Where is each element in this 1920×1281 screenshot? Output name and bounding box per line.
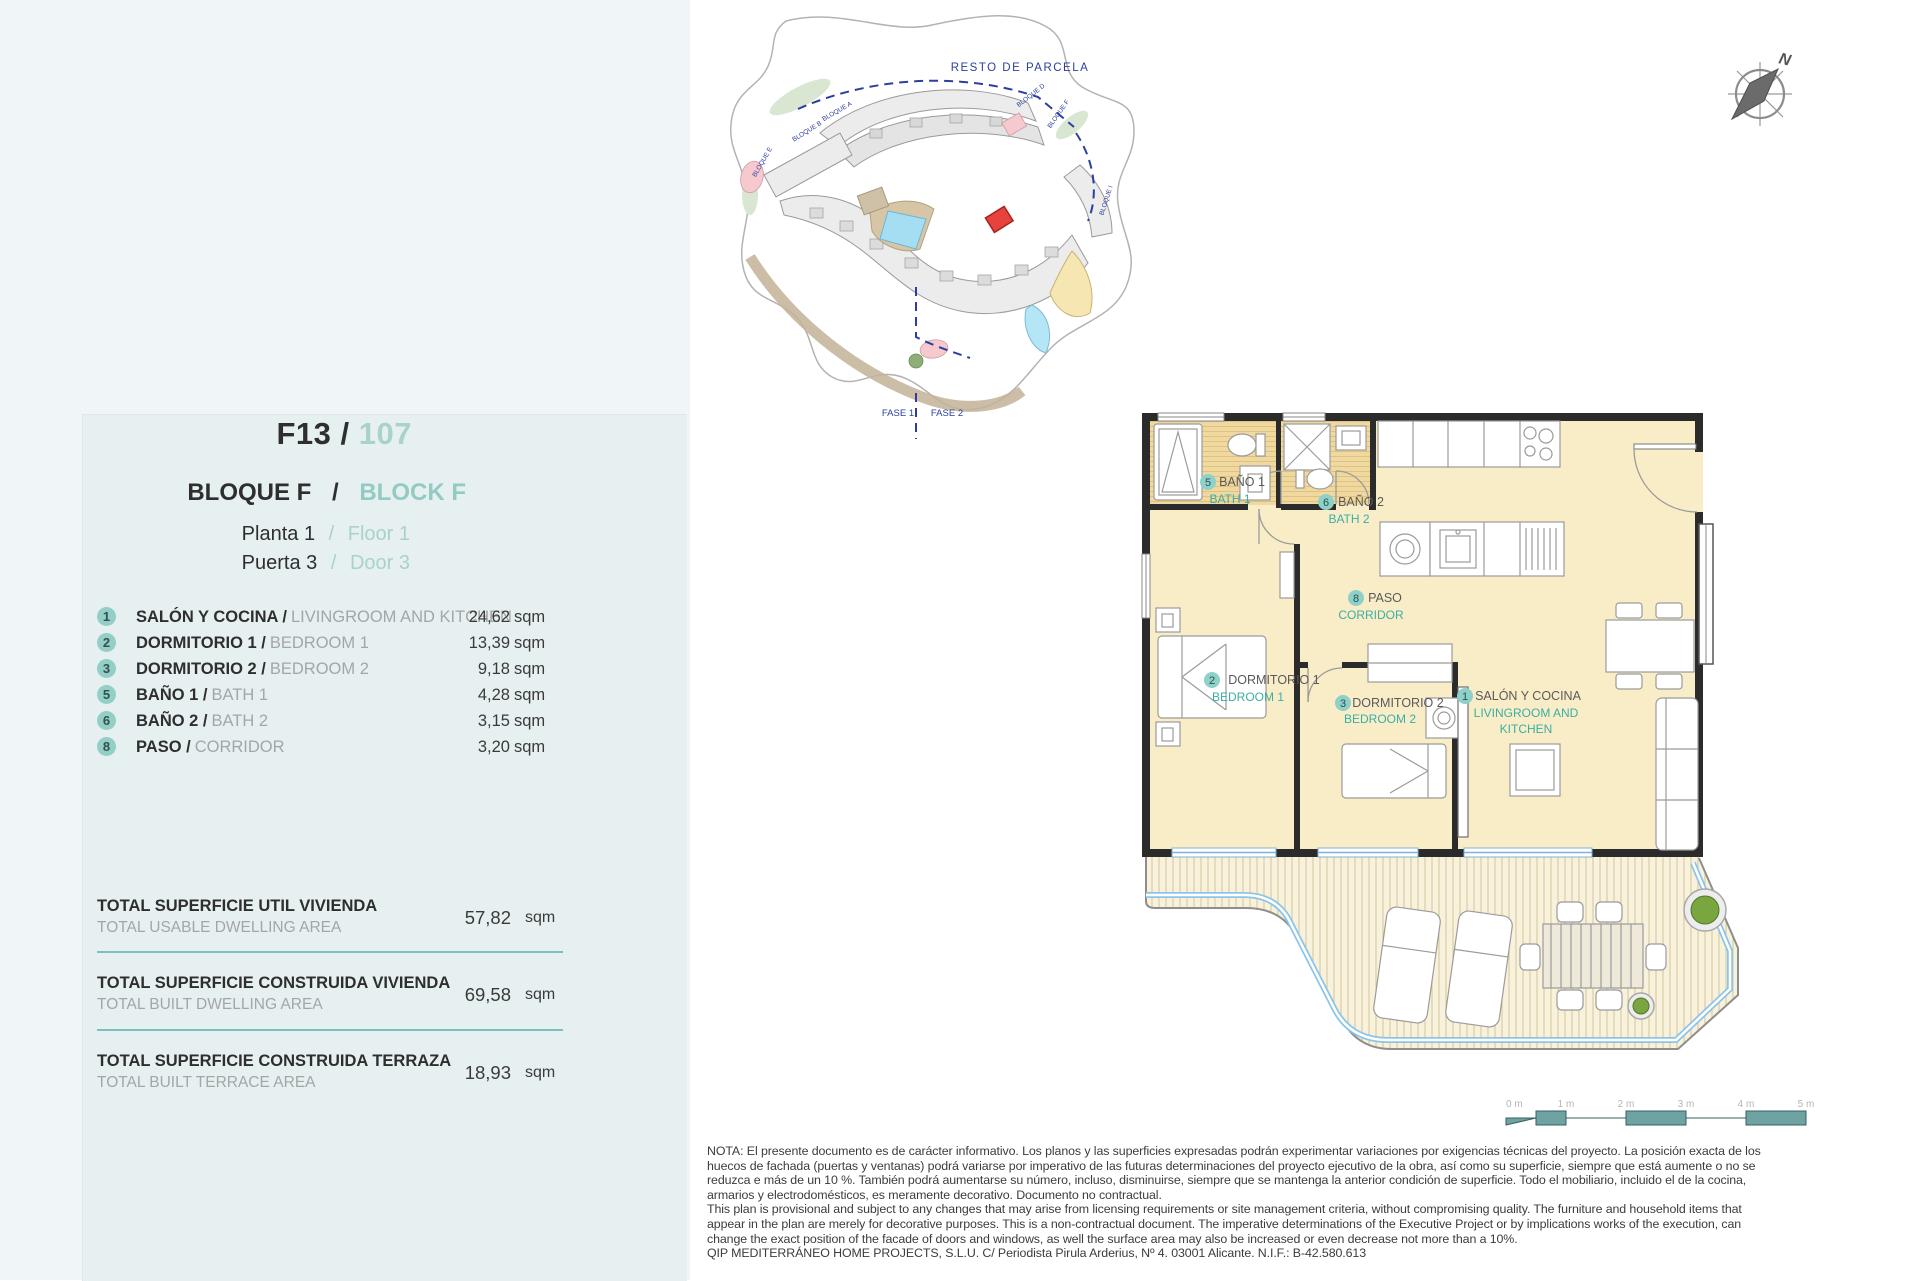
note-line: appear in the plan are merely for decora… xyxy=(707,1217,1862,1232)
note-line: armarios y electrodomésticos, es meramen… xyxy=(707,1188,1862,1203)
divider-line xyxy=(97,1029,563,1031)
note-line: This plan is provisional and subject to … xyxy=(707,1202,1862,1217)
door-es: Puerta 3 xyxy=(242,552,318,574)
svg-text:BAÑO 1: BAÑO 1 xyxy=(1219,475,1265,489)
room-number-badge: 5 xyxy=(97,685,116,704)
svg-text:PASO: PASO xyxy=(1368,591,1402,605)
svg-text:1: 1 xyxy=(1462,691,1468,703)
svg-text:DORMITORIO 1: DORMITORIO 1 xyxy=(1228,673,1319,687)
svg-text:8: 8 xyxy=(1353,593,1359,605)
svg-text:5: 5 xyxy=(1205,477,1211,489)
room-area-value: 4,28 xyxy=(478,682,510,708)
svg-text:BATH 1: BATH 1 xyxy=(1209,492,1250,506)
svg-text:SALÓN Y COCINA: SALÓN Y COCINA xyxy=(1475,688,1581,703)
total-value: 69,58 xyxy=(465,984,511,1006)
room-area-value: 9,18 xyxy=(478,656,510,682)
room-area-value: 3,20 xyxy=(478,734,510,760)
floorplan-sheet: { "panel": { "unit_code": "F13 /", "unit… xyxy=(0,0,1920,1280)
total-terrace-area: TOTAL SUPERFICIE CONSTRUIDA TERRAZA TOTA… xyxy=(97,1051,563,1093)
room-area-value: 3,15 xyxy=(478,708,510,734)
site-plan: RESTO DE PARCELA BLOQUE A BLOQUE B BLOQU… xyxy=(720,5,1156,445)
room-name-en: BEDROOM 1 xyxy=(270,634,369,652)
svg-text:2: 2 xyxy=(1209,675,1215,687)
unit-code: F13 / xyxy=(276,416,349,451)
legal-note-block: NOTA: El presente documento es de caráct… xyxy=(707,1144,1862,1261)
block-name-es: BLOQUE F xyxy=(187,479,311,506)
apartment-floor-plan: 1 SALÓN Y COCINA LIVINGROOM AND KITCHEN … xyxy=(1128,404,1768,1114)
floor-line: Planta 1 / Floor 1 xyxy=(82,523,410,546)
floor-es: Planta 1 xyxy=(242,523,315,545)
note-line: reduzca e más de un 10 %. También podrá … xyxy=(707,1173,1862,1188)
door-separator: / xyxy=(331,552,337,574)
room-area-value: 24,62 xyxy=(469,604,510,630)
svg-text:DORMITORIO 2: DORMITORIO 2 xyxy=(1352,696,1443,710)
door-line: Puerta 3 / Door 3 xyxy=(82,552,410,575)
svg-text:5 m: 5 m xyxy=(1798,1099,1815,1110)
room-name-en: CORRIDOR xyxy=(195,738,285,756)
room-row-bath1: 5BAÑO 1 /BATH 1 4,28sqm xyxy=(97,682,552,708)
svg-text:BATH 2: BATH 2 xyxy=(1328,512,1369,526)
room-row-corridor: 8PASO /CORRIDOR 3,20sqm xyxy=(97,734,552,760)
room-name-en: BATH 2 xyxy=(212,712,269,730)
room-area-value: 13,39 xyxy=(469,630,510,656)
total-unit: sqm xyxy=(525,1064,563,1082)
room-name-es: DORMITORIO 1 / xyxy=(136,634,266,652)
floor-separator: / xyxy=(329,523,335,545)
block-separator: / xyxy=(332,479,339,506)
north-compass-icon: N xyxy=(1718,45,1802,137)
total-unit: sqm xyxy=(525,909,563,927)
room-name-es: PASO / xyxy=(136,738,191,756)
svg-text:3 m: 3 m xyxy=(1678,1099,1695,1110)
total-usable-area: TOTAL SUPERFICIE UTIL VIVIENDA TOTAL USA… xyxy=(97,896,563,938)
room-list: 1SALÓN Y COCINA /LIVINGROOM AND KITCHEN … xyxy=(97,604,552,760)
room-area-unit: sqm xyxy=(514,604,552,630)
room-row-salon: 1SALÓN Y COCINA /LIVINGROOM AND KITCHEN … xyxy=(97,604,552,630)
room-row-bedroom2: 3DORMITORIO 2 /BEDROOM 2 9,18sqm xyxy=(97,656,552,682)
resto-de-parcela-label: RESTO DE PARCELA xyxy=(951,62,1090,74)
compass-north-letter: N xyxy=(1777,50,1793,69)
svg-text:2 m: 2 m xyxy=(1618,1099,1635,1110)
note-line: huecos de fachada (puertas y ventanas) p… xyxy=(707,1159,1862,1174)
svg-text:4 m: 4 m xyxy=(1738,1099,1755,1110)
divider-line xyxy=(97,951,563,953)
room-area-unit: sqm xyxy=(514,734,552,760)
svg-text:BEDROOM 2: BEDROOM 2 xyxy=(1344,712,1416,726)
unit-title: F13 / 107 xyxy=(82,416,412,452)
room-name-es: BAÑO 1 / xyxy=(136,686,208,704)
scale-bar: 0 m 1 m 2 m 3 m 4 m 5 m xyxy=(1498,1096,1848,1138)
note-line: change the exact position of the facade … xyxy=(707,1232,1862,1247)
room-name-es: DORMITORIO 2 / xyxy=(136,660,266,678)
room-number-badge: 8 xyxy=(97,737,116,756)
room-number-badge: 2 xyxy=(97,633,116,652)
room-area-unit: sqm xyxy=(514,630,552,656)
room-number-badge: 3 xyxy=(97,659,116,678)
room-number-badge: 6 xyxy=(97,711,116,730)
room-area-unit: sqm xyxy=(514,682,552,708)
fase2-label: FASE 2 xyxy=(931,408,963,419)
total-value: 57,82 xyxy=(465,907,511,929)
block-name-en: BLOCK F xyxy=(359,479,466,506)
room-row-bath2: 6BAÑO 2 /BATH 2 3,15sqm xyxy=(97,708,552,734)
block-title: BLOQUE F / BLOCK F xyxy=(82,479,466,507)
total-unit: sqm xyxy=(525,986,563,1004)
svg-text:BEDROOM 1: BEDROOM 1 xyxy=(1212,690,1284,704)
room-number-badge: 1 xyxy=(97,607,116,626)
total-value: 18,93 xyxy=(465,1062,511,1084)
room-name-es: BAÑO 2 / xyxy=(136,712,208,730)
door-en: Door 3 xyxy=(350,552,410,574)
svg-text:CORRIDOR: CORRIDOR xyxy=(1338,608,1404,622)
room-name-en: BEDROOM 2 xyxy=(270,660,369,678)
total-built-area: TOTAL SUPERFICIE CONSTRUIDA VIVIENDA TOT… xyxy=(97,973,563,1015)
svg-text:BAÑO 2: BAÑO 2 xyxy=(1338,495,1384,509)
room-row-bedroom1: 2DORMITORIO 1 /BEDROOM 1 13,39sqm xyxy=(97,630,552,656)
company-info-line: QIP MEDITERRÁNEO HOME PROJECTS, S.L.U. C… xyxy=(707,1246,1862,1261)
svg-text:KITCHEN: KITCHEN xyxy=(1500,722,1553,736)
svg-text:0 m: 0 m xyxy=(1506,1099,1523,1110)
svg-text:3: 3 xyxy=(1340,698,1346,710)
svg-text:LIVINGROOM AND: LIVINGROOM AND xyxy=(1474,706,1579,720)
svg-text:1 m: 1 m xyxy=(1558,1099,1575,1110)
room-area-unit: sqm xyxy=(514,656,552,682)
note-line: NOTA: El presente documento es de caráct… xyxy=(707,1144,1862,1159)
room-name-en: BATH 1 xyxy=(212,686,269,704)
floor-en: Floor 1 xyxy=(348,523,410,545)
fase1-label: FASE 1 xyxy=(882,408,914,419)
room-area-unit: sqm xyxy=(514,708,552,734)
room-name-es: SALÓN Y COCINA / xyxy=(136,608,287,626)
svg-text:6: 6 xyxy=(1323,497,1329,509)
unit-number: 107 xyxy=(359,416,412,451)
